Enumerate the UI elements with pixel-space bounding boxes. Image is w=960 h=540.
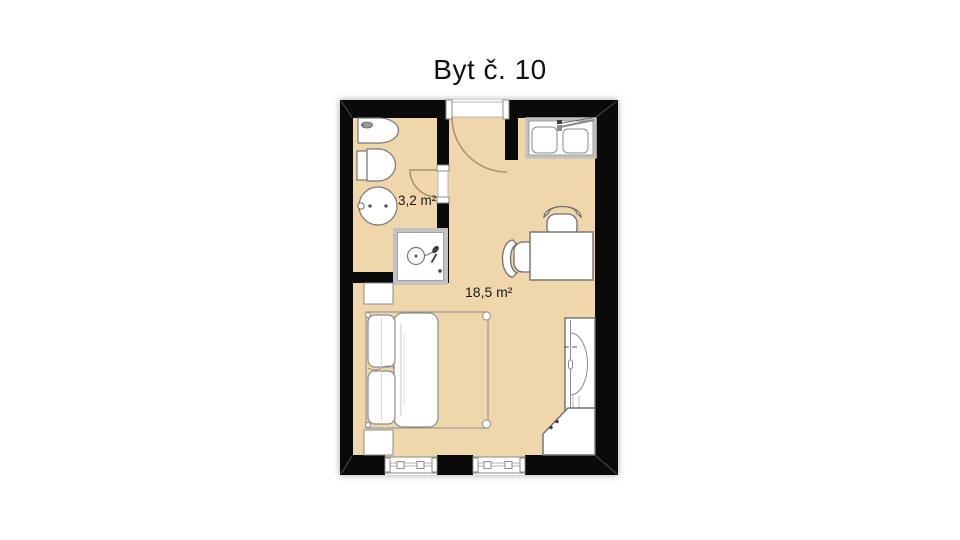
bathroom-door-frame [437,165,449,203]
built-in-wardrobe [527,118,595,158]
duvet [394,313,438,427]
window [473,457,525,473]
wardrobe [564,318,595,410]
nightstand [364,430,393,455]
toilet [357,149,396,181]
floor-plan-page: Byt č. 10 [0,0,960,540]
table [530,232,593,280]
washbasin [358,187,397,225]
area-label-living-room: 18,5 m² [465,284,512,300]
shower-enclosure [395,230,446,283]
area-label-bathroom: 3,2 m² [398,193,436,208]
floor-plan-svg [0,0,960,540]
nightstand [364,283,393,304]
entry-door-frame [446,100,509,119]
window [385,457,437,473]
bidet [358,118,399,143]
